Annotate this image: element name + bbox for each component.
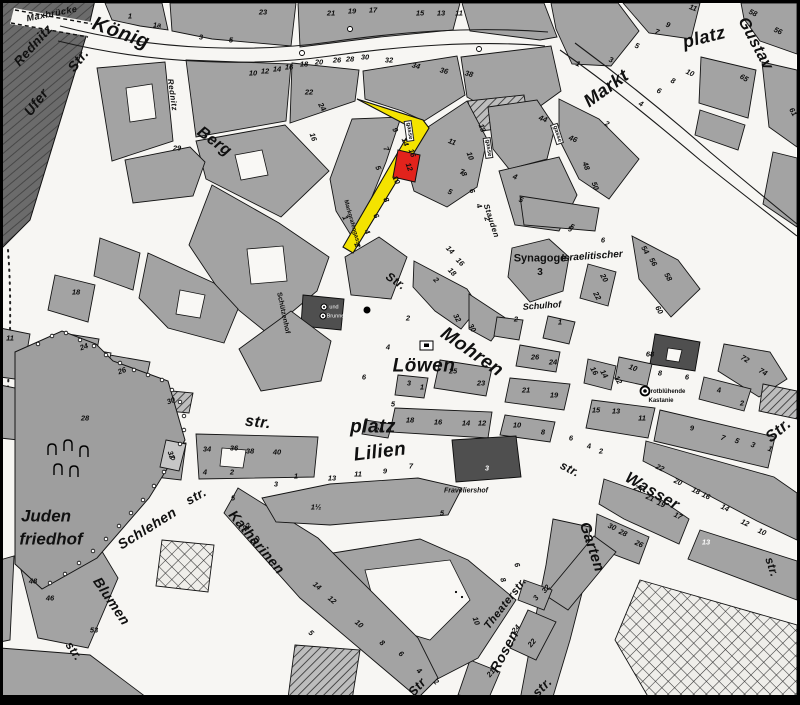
well-symbol bbox=[322, 315, 324, 317]
city-map: MaxbrückeRednitzKönigStr.UferRednitzBerg… bbox=[0, 0, 800, 705]
dot-symbol bbox=[455, 591, 457, 593]
well-symbol bbox=[323, 306, 325, 308]
buildings-layer bbox=[0, 3, 797, 700]
map-border-bottom bbox=[0, 695, 800, 705]
highlight-building-12 bbox=[393, 150, 420, 182]
dot-symbol bbox=[461, 596, 463, 598]
street-lamp-symbol bbox=[300, 51, 305, 56]
map-graphics bbox=[0, 0, 800, 705]
street-lamp-symbol bbox=[477, 47, 482, 52]
fountain-dot-symbol bbox=[364, 307, 371, 314]
chestnut-tree-symbol bbox=[643, 389, 647, 393]
monument-symbol bbox=[424, 344, 429, 348]
street-lamp-symbol bbox=[348, 27, 353, 32]
